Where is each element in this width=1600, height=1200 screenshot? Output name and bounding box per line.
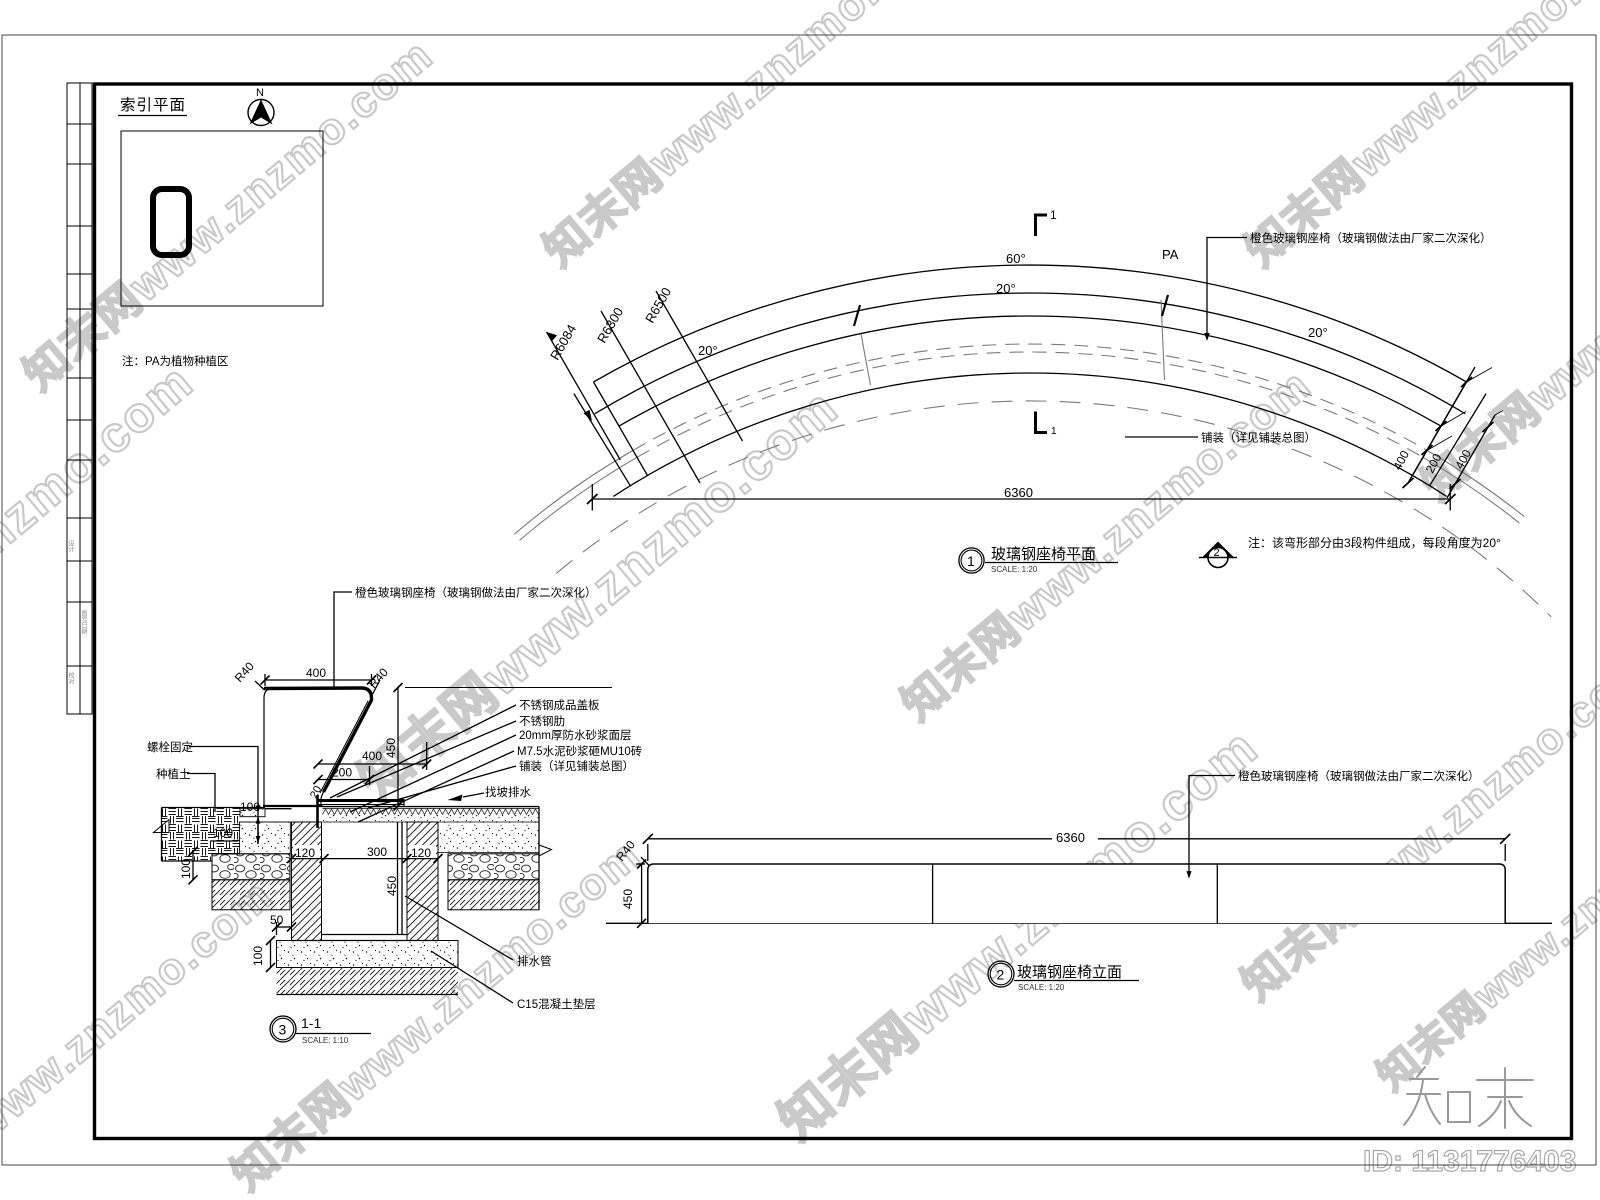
svg-text:不锈钢成品盖板: 不锈钢成品盖板 [519,698,600,712]
svg-text:ID: 1131776403: ID: 1131776403 [1363,1145,1577,1178]
svg-text:450: 450 [621,889,635,909]
svg-text:300: 300 [367,845,387,859]
svg-text:3: 3 [279,1022,287,1038]
svg-text:400: 400 [306,666,326,680]
svg-text:玻璃钢座椅立面: 玻璃钢座椅立面 [1017,964,1122,981]
svg-text:20°: 20° [698,343,718,358]
svg-text:橙色玻璃钢座椅（玻璃钢做法由厂家二次深化）: 橙色玻璃钢座椅（玻璃钢做法由厂家二次深化） [1238,769,1480,783]
svg-text:200: 200 [332,766,352,780]
svg-text:排水管: 排水管 [517,954,552,968]
svg-text:400: 400 [362,749,382,763]
svg-text:找坡排水: 找坡排水 [485,785,531,799]
svg-text:60°: 60° [1006,251,1026,266]
svg-text:设计: 设计 [67,539,74,553]
svg-text:种植土: 种植土 [156,767,191,781]
svg-text:不锈钢肋: 不锈钢肋 [519,714,565,728]
svg-text:20°: 20° [996,281,1016,296]
svg-text:450: 450 [384,738,398,758]
svg-text:1: 1 [967,553,975,569]
svg-text:M7.5水泥砂浆砸MU10砖: M7.5水泥砂浆砸MU10砖 [517,744,643,758]
svg-text:2: 2 [997,967,1005,983]
svg-text:20°: 20° [1308,325,1328,340]
svg-text:螺栓固定: 螺栓固定 [147,740,193,754]
svg-text:20mm厚防水砂浆面层: 20mm厚防水砂浆面层 [519,728,631,742]
svg-text:120: 120 [411,846,431,860]
svg-text:校对: 校对 [67,671,74,684]
svg-text:120: 120 [295,846,315,860]
svg-text:100: 100 [213,826,233,840]
svg-text:玻璃钢座椅平面: 玻璃钢座椅平面 [991,546,1096,563]
svg-text:SCALE: 1:20: SCALE: 1:20 [991,565,1038,574]
svg-text:图号日期: 图号日期 [80,610,87,635]
svg-text:注：PA为植物种植区: 注：PA为植物种植区 [122,354,229,368]
svg-text:100: 100 [251,946,265,966]
svg-text:橙色玻璃钢座椅（玻璃钢做法由厂家二次深化）: 橙色玻璃钢座椅（玻璃钢做法由厂家二次深化） [1250,231,1492,245]
svg-text:铺装（详见铺装总图）: 铺装（详见铺装总图） [519,759,634,773]
svg-text:N: N [256,87,264,99]
svg-text:100: 100 [240,800,260,814]
svg-text:铺装（详见铺装总图）: 铺装（详见铺装总图） [1201,431,1316,445]
svg-text:索引平面: 索引平面 [120,96,186,114]
svg-text:SCALE: 1:10: SCALE: 1:10 [302,1036,349,1045]
svg-text:6360: 6360 [1004,485,1033,500]
svg-text:1: 1 [1051,426,1057,437]
svg-text:SCALE: 1:20: SCALE: 1:20 [1018,983,1065,992]
svg-text:注：该弯形部分由3段构件组成，每段角度为20°: 注：该弯形部分由3段构件组成，每段角度为20° [1248,535,1501,550]
svg-text:1: 1 [1050,208,1057,222]
svg-text:橙色玻璃钢座椅（玻璃钢做法由厂家二次深化）: 橙色玻璃钢座椅（玻璃钢做法由厂家二次深化） [355,586,597,600]
svg-text:PA: PA [1162,247,1179,262]
svg-text:6360: 6360 [1056,830,1085,845]
svg-text:C15混凝土垫层: C15混凝土垫层 [517,997,596,1011]
svg-text:100: 100 [179,859,193,879]
svg-text:450: 450 [385,876,399,896]
svg-text:1-1: 1-1 [301,1015,321,1031]
svg-text:2: 2 [1214,547,1220,559]
